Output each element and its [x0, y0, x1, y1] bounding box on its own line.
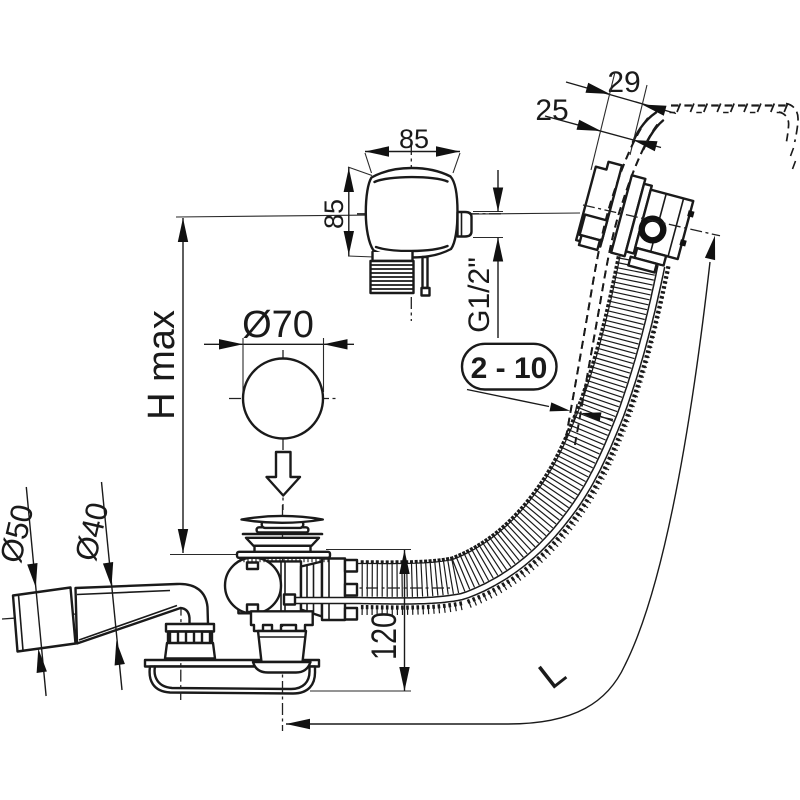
- svg-text:G1/2": G1/2": [463, 257, 496, 333]
- svg-text:120: 120: [365, 612, 404, 660]
- svg-text:2 - 10: 2 - 10: [471, 352, 548, 385]
- svg-text:85: 85: [399, 124, 429, 154]
- svg-text:H max: H max: [141, 310, 183, 420]
- svg-text:Ø70: Ø70: [242, 304, 314, 346]
- svg-text:85: 85: [319, 199, 349, 229]
- svg-text:25: 25: [535, 94, 568, 127]
